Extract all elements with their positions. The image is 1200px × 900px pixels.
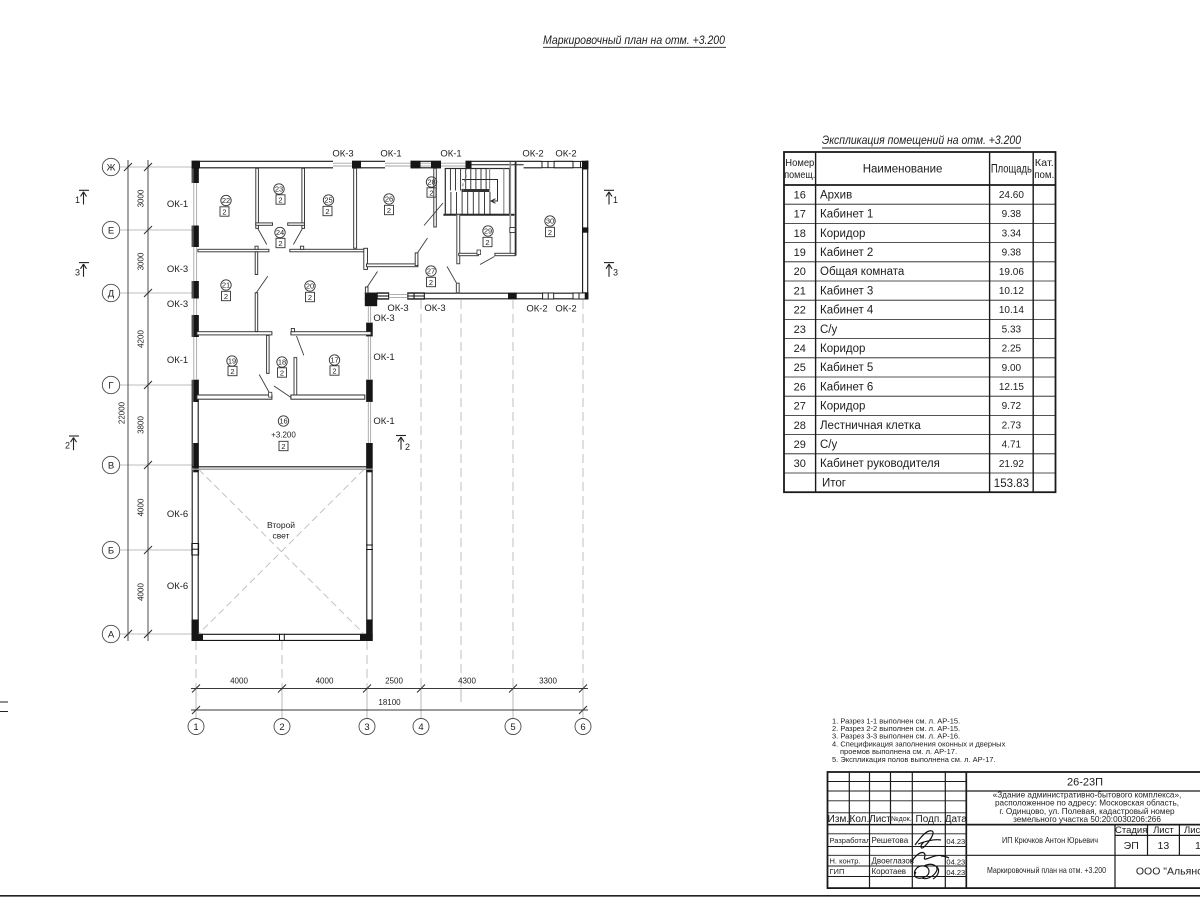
svg-text:ОК-1: ОК-1 — [440, 149, 461, 160]
svg-text:19: 19 — [228, 357, 236, 366]
svg-text:29: 29 — [484, 227, 492, 236]
svg-text:9.00: 9.00 — [1002, 363, 1022, 374]
svg-text:24: 24 — [794, 343, 806, 355]
svg-text:ОК-2: ОК-2 — [555, 304, 576, 315]
svg-text:Разработал: Разработал — [830, 836, 871, 845]
svg-text:ОК-1: ОК-1 — [373, 416, 394, 427]
svg-text:ОК-3: ОК-3 — [167, 264, 188, 275]
svg-text:5: 5 — [510, 722, 515, 733]
svg-text:18100: 18100 — [378, 698, 401, 707]
svg-text:2: 2 — [387, 206, 391, 215]
svg-text:ОК-3: ОК-3 — [424, 303, 445, 314]
svg-text:Д: Д — [108, 289, 115, 300]
svg-text:12.15: 12.15 — [999, 382, 1024, 393]
svg-text:ОК-1: ОК-1 — [373, 352, 394, 363]
svg-text:23: 23 — [794, 324, 806, 336]
svg-text:Двоеглазов: Двоеглазов — [872, 857, 915, 866]
svg-text:+3.200: +3.200 — [271, 430, 296, 439]
svg-text:04.23: 04.23 — [946, 868, 965, 877]
svg-text:Е: Е — [108, 226, 114, 237]
svg-text:21.92: 21.92 — [999, 459, 1024, 470]
svg-text:Г: Г — [108, 381, 113, 392]
svg-text:ОК-3: ОК-3 — [373, 313, 394, 324]
svg-text:Коридор: Коридор — [820, 228, 865, 240]
svg-text:Маркировочный план на отм. +3.: Маркировочный план на отм. +3.200 — [987, 866, 1106, 875]
svg-text:2.25: 2.25 — [1002, 344, 1022, 355]
svg-text:№док.: №док. — [891, 816, 912, 823]
svg-text:22: 22 — [222, 196, 230, 205]
svg-text:Наименование: Наименование — [863, 164, 943, 176]
svg-text:4200: 4200 — [137, 330, 146, 348]
svg-text:5. Экспликация полов выполнена: 5. Экспликация полов выполнена см. л. АР… — [832, 755, 996, 764]
svg-text:помещ.: помещ. — [784, 169, 815, 181]
svg-text:16: 16 — [794, 189, 806, 201]
svg-text:9.38: 9.38 — [1002, 209, 1022, 220]
svg-text:4000: 4000 — [316, 677, 334, 686]
svg-text:1: 1 — [193, 722, 198, 733]
svg-text:2: 2 — [281, 442, 285, 451]
svg-text:4000: 4000 — [230, 677, 248, 686]
svg-text:28: 28 — [427, 178, 435, 187]
svg-text:3000: 3000 — [137, 189, 146, 207]
svg-text:Коридор: Коридор — [820, 343, 865, 355]
svg-text:Кабинет 4: Кабинет 4 — [820, 305, 874, 317]
svg-text:ОК-1: ОК-1 — [380, 149, 401, 160]
svg-text:Кабинет 3: Кабинет 3 — [820, 285, 873, 297]
svg-text:Второй: Второй — [267, 520, 295, 530]
svg-text:ОК-1: ОК-1 — [167, 199, 188, 210]
svg-text:Маркировочный план на отм. +3.: Маркировочный план на отм. +3.200 — [543, 35, 726, 47]
svg-text:2: 2 — [405, 442, 410, 452]
svg-text:13: 13 — [1158, 840, 1170, 852]
svg-text:Коридор: Коридор — [820, 401, 865, 413]
svg-text:21: 21 — [222, 281, 230, 290]
svg-text:Кат.: Кат. — [1035, 157, 1054, 169]
svg-text:Дата: Дата — [945, 814, 968, 825]
svg-text:19.06: 19.06 — [999, 267, 1024, 278]
svg-text:2: 2 — [325, 207, 329, 216]
svg-text:2: 2 — [278, 195, 282, 204]
svg-text:Кабинет 2: Кабинет 2 — [820, 247, 873, 259]
svg-text:2: 2 — [429, 188, 433, 197]
svg-text:17: 17 — [1195, 840, 1200, 852]
svg-text:Кабинет руководителя: Кабинет руководителя — [820, 458, 940, 470]
svg-text:4000: 4000 — [137, 583, 146, 601]
svg-text:27: 27 — [427, 267, 435, 276]
svg-text:ЭП: ЭП — [1124, 840, 1139, 852]
svg-text:Н. контр.: Н. контр. — [830, 857, 861, 866]
svg-text:Архив: Архив — [820, 189, 852, 201]
svg-text:Коротаев: Коротаев — [872, 867, 907, 876]
svg-text:С/у: С/у — [820, 324, 838, 336]
svg-text:18: 18 — [794, 228, 806, 240]
svg-text:21: 21 — [794, 285, 806, 297]
svg-text:29: 29 — [794, 439, 806, 451]
svg-text:Подп.: Подп. — [916, 814, 943, 825]
svg-text:3: 3 — [364, 722, 369, 733]
svg-text:ОК-3: ОК-3 — [167, 299, 188, 310]
svg-text:ОК-2: ОК-2 — [555, 149, 576, 160]
svg-text:153.83: 153.83 — [994, 478, 1029, 490]
svg-text:26: 26 — [385, 195, 393, 204]
svg-text:5.33: 5.33 — [1002, 324, 1022, 335]
svg-text:2: 2 — [230, 367, 234, 376]
svg-text:Листов: Листов — [1184, 825, 1200, 836]
svg-text:Решетова: Решетова — [872, 836, 909, 845]
svg-text:ОК-2: ОК-2 — [526, 304, 547, 315]
svg-text:Экспликация помещений на отм.: Экспликация помещений на отм. +3.200 — [822, 135, 1022, 147]
svg-text:пом.: пом. — [1034, 169, 1054, 181]
svg-text:24: 24 — [276, 228, 284, 237]
svg-text:20: 20 — [794, 266, 806, 278]
svg-text:4300: 4300 — [458, 677, 476, 686]
svg-text:26: 26 — [794, 381, 806, 393]
svg-text:1: 1 — [613, 195, 618, 205]
svg-text:Кабинет 6: Кабинет 6 — [820, 381, 873, 393]
svg-text:ОК-2: ОК-2 — [522, 149, 543, 160]
svg-text:С/у: С/у — [820, 439, 838, 451]
svg-text:3800: 3800 — [137, 416, 146, 434]
svg-text:Стадия: Стадия — [1115, 825, 1147, 836]
svg-text:Кабинет 5: Кабинет 5 — [820, 362, 873, 374]
svg-text:ОК-6: ОК-6 — [167, 581, 188, 592]
svg-text:3000: 3000 — [137, 252, 146, 270]
svg-text:ГИП: ГИП — [830, 867, 845, 876]
svg-text:19: 19 — [794, 247, 806, 259]
svg-text:ОК-3: ОК-3 — [332, 149, 353, 160]
svg-text:2: 2 — [222, 207, 226, 216]
svg-text:Лестничная клетка: Лестничная клетка — [820, 420, 921, 432]
svg-text:Итог: Итог — [822, 477, 846, 489]
svg-text:ООО "Альянс": ООО "Альянс" — [1136, 866, 1200, 878]
svg-text:Ж: Ж — [107, 163, 116, 174]
svg-text:Изм.: Изм. — [828, 814, 849, 825]
svg-text:ИП Крючков Антон Юрьевич: ИП Крючков Антон Юрьевич — [1002, 835, 1098, 845]
svg-text:3: 3 — [613, 267, 618, 277]
svg-text:Лист: Лист — [1153, 825, 1174, 836]
svg-text:2: 2 — [548, 228, 552, 237]
svg-text:17: 17 — [330, 356, 338, 365]
svg-text:А: А — [108, 630, 115, 641]
svg-text:свет: свет — [272, 531, 289, 541]
svg-text:04.23: 04.23 — [946, 858, 965, 867]
svg-text:6: 6 — [580, 722, 585, 733]
svg-text:2.73: 2.73 — [1002, 420, 1022, 431]
svg-text:30: 30 — [794, 458, 806, 470]
svg-text:2: 2 — [279, 722, 284, 733]
svg-text:25: 25 — [324, 196, 332, 205]
svg-text:2: 2 — [429, 278, 433, 287]
svg-text:28: 28 — [794, 420, 806, 432]
svg-text:В: В — [108, 461, 114, 472]
svg-text:земельного участка 50:20:00302: земельного участка 50:20:0030206:266 — [1013, 815, 1161, 824]
svg-text:20: 20 — [306, 282, 314, 291]
svg-text:Номер: Номер — [785, 157, 814, 169]
svg-text:17: 17 — [794, 209, 806, 221]
svg-text:ОК-3: ОК-3 — [387, 303, 408, 314]
svg-text:1: 1 — [75, 195, 80, 205]
svg-text:4: 4 — [418, 722, 423, 733]
svg-text:16: 16 — [279, 417, 287, 426]
svg-text:10.12: 10.12 — [999, 286, 1024, 297]
svg-text:2: 2 — [308, 293, 312, 302]
svg-text:2: 2 — [65, 441, 70, 451]
svg-text:Кабинет 1: Кабинет 1 — [820, 209, 873, 221]
svg-text:2: 2 — [485, 238, 489, 247]
svg-text:ОК-6: ОК-6 — [167, 509, 188, 520]
svg-text:18: 18 — [278, 358, 286, 367]
svg-text:2500: 2500 — [385, 677, 403, 686]
svg-text:9.38: 9.38 — [1002, 248, 1022, 259]
svg-text:9.72: 9.72 — [1002, 401, 1022, 412]
svg-text:04.23: 04.23 — [946, 837, 965, 846]
svg-text:2: 2 — [224, 292, 228, 301]
svg-text:22000: 22000 — [118, 401, 127, 424]
svg-text:24.60: 24.60 — [999, 190, 1024, 201]
svg-text:2: 2 — [280, 368, 284, 377]
svg-text:ОК-1: ОК-1 — [167, 355, 188, 366]
svg-text:27: 27 — [794, 401, 806, 413]
svg-text:23: 23 — [275, 185, 283, 194]
svg-text:25: 25 — [794, 362, 806, 374]
svg-text:Площадь: Площадь — [991, 164, 1032, 176]
svg-text:3.34: 3.34 — [1002, 228, 1022, 239]
svg-text:3300: 3300 — [539, 677, 557, 686]
svg-text:26-23П: 26-23П — [1067, 777, 1103, 789]
svg-text:Кол.: Кол. — [850, 814, 870, 825]
svg-text:10.14: 10.14 — [999, 305, 1024, 316]
svg-text:2: 2 — [332, 366, 336, 375]
svg-text:22: 22 — [794, 305, 806, 317]
svg-text:30: 30 — [546, 217, 554, 226]
svg-text:4000: 4000 — [137, 498, 146, 516]
svg-text:3: 3 — [75, 267, 80, 277]
svg-text:4.71: 4.71 — [1002, 440, 1022, 451]
svg-text:Б: Б — [108, 546, 114, 557]
svg-text:Общая комната: Общая комната — [820, 266, 905, 278]
svg-text:Лист: Лист — [869, 814, 891, 825]
svg-text:2: 2 — [278, 239, 282, 248]
